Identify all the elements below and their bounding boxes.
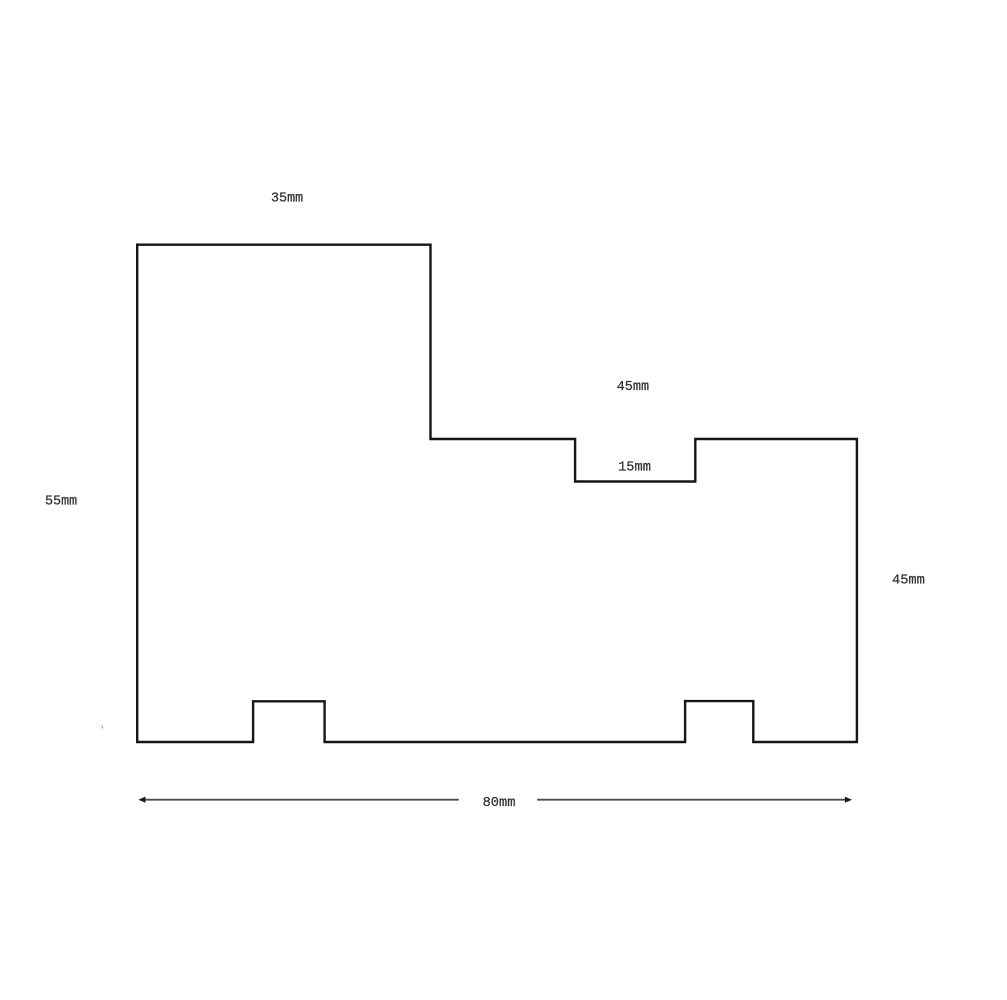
- svg-text:45mm: 45mm: [892, 572, 925, 588]
- svg-text:55mm: 55mm: [45, 494, 77, 510]
- svg-text:45mm: 45mm: [617, 379, 650, 395]
- svg-text:15mm: 15mm: [618, 460, 651, 476]
- svg-text:80mm: 80mm: [483, 795, 516, 811]
- svg-text:35mm: 35mm: [271, 191, 303, 207]
